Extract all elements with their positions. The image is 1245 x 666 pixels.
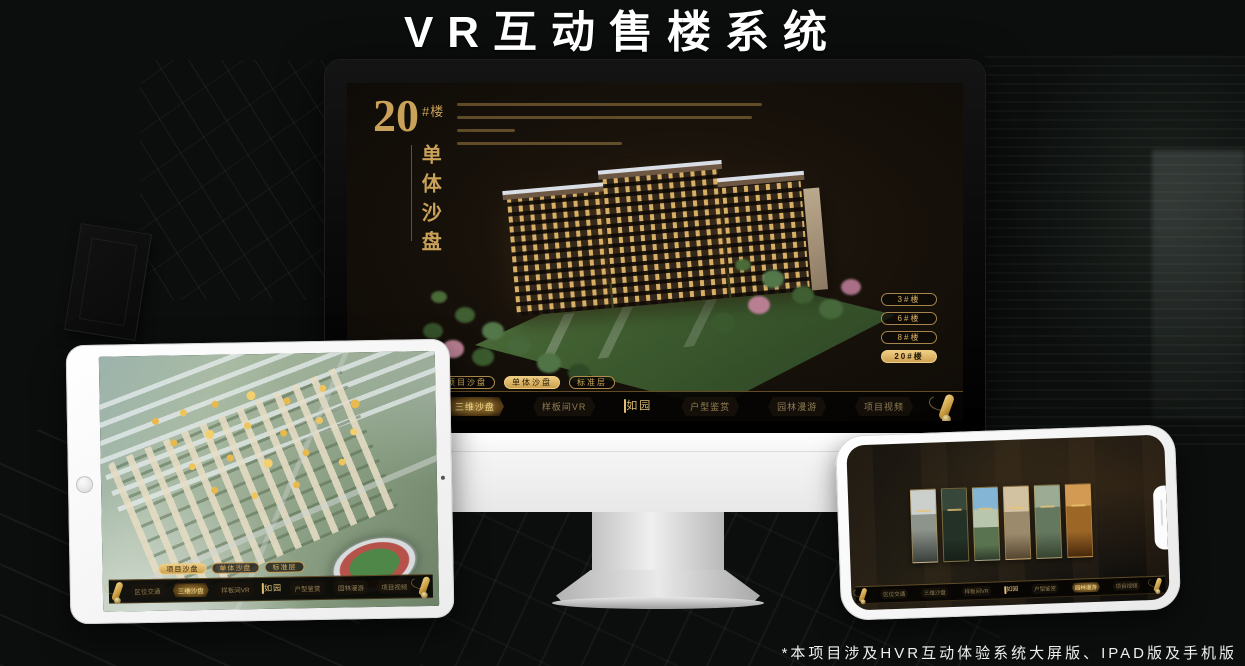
- poster-canvas: 20 #楼 单体沙盘 3#楼 6#楼 8#楼: [0, 0, 1245, 666]
- brand-logo-text: 如园: [264, 583, 282, 592]
- nav-item-showroom-vr[interactable]: 样板间VR: [533, 397, 596, 416]
- floor-button-8[interactable]: 8#楼: [881, 331, 937, 344]
- foliage-left: [431, 291, 447, 303]
- scene-panel[interactable]: [910, 489, 939, 564]
- background-bridge-glow: [1152, 150, 1245, 420]
- nav-item-garden-roam[interactable]: 园林漫游: [333, 580, 369, 595]
- nav-item-project-video[interactable]: 项目视频: [1112, 580, 1140, 591]
- page-title: VR互动售楼系统: [0, 0, 1245, 56]
- tablet-home-button[interactable]: [76, 476, 93, 493]
- brand-logo: 如园: [624, 400, 652, 412]
- scene-panel[interactable]: [1003, 485, 1032, 560]
- nav-item-project-video[interactable]: 项目视频: [855, 397, 913, 416]
- nav-item-floorplan[interactable]: 户型鉴赏: [681, 397, 739, 416]
- unit-number: 20: [373, 95, 419, 136]
- nav-item-location[interactable]: 区位交通: [880, 589, 908, 600]
- scroll-handle-icon[interactable]: [111, 581, 124, 602]
- nav-item-garden-roam[interactable]: 园林漫游: [768, 397, 826, 416]
- nav-item-project-video[interactable]: 项目视频: [376, 579, 412, 594]
- nav-item-floorplan[interactable]: 户型鉴赏: [289, 581, 325, 596]
- description-line: [457, 129, 515, 132]
- brand-logo-text: 如园: [626, 400, 652, 412]
- tablet-device: 项目沙盘 单体沙盘 标准层 区位交通 三维沙盘 样板间VR 如园 户型鉴赏 园林…: [66, 339, 455, 625]
- background-plaque: [64, 223, 152, 341]
- unit-number-suffix: #楼: [422, 101, 444, 120]
- floor-button-3[interactable]: 3#楼: [881, 293, 937, 306]
- phone-screen: 区位交通 三维沙盘 样板间VR 如园 户型鉴赏 园林漫游 项目视频: [846, 435, 1170, 611]
- building-number-markers[interactable]: [152, 418, 159, 425]
- building-wing: [602, 168, 729, 308]
- scroll-handle-icon[interactable]: [1153, 577, 1162, 592]
- tab-project-sandtable[interactable]: 项目沙盘: [158, 563, 206, 575]
- brand-logo-text: 如园: [1006, 586, 1018, 592]
- brand-emblem-icon: [624, 399, 626, 413]
- scene-panel[interactable]: [1065, 483, 1094, 558]
- nav-item-location[interactable]: 区位交通: [129, 584, 165, 599]
- floor-button-20[interactable]: 20#楼: [881, 350, 937, 363]
- description-line: [457, 103, 762, 106]
- scene-panel-gallery: [910, 483, 1093, 563]
- floor-button-group: 3#楼 6#楼 8#楼 20#楼: [881, 293, 937, 363]
- nav-item-garden-roam[interactable]: 园林漫游: [1072, 582, 1100, 593]
- tablet-camera-icon: [441, 476, 445, 480]
- footnote: *本项目涉及HVR互动体验系统大屏版、IPAD版及手机版: [782, 642, 1237, 663]
- tab-single-sandtable[interactable]: 单体沙盘: [504, 376, 560, 389]
- building-wing: [507, 190, 612, 316]
- description-line: [457, 116, 752, 119]
- brand-logo: 如园: [262, 584, 282, 593]
- nav-item-3d-sandtable[interactable]: 三维沙盘: [446, 397, 504, 416]
- floor-button-6[interactable]: 6#楼: [881, 312, 937, 325]
- nav-item-3d-sandtable[interactable]: 三维沙盘: [921, 587, 949, 598]
- building-model: [504, 138, 828, 317]
- brand-logo: 如园: [1004, 586, 1018, 593]
- scene-panel[interactable]: [941, 487, 970, 562]
- scroll-handle-icon[interactable]: [938, 393, 955, 421]
- foliage-right: [735, 259, 751, 271]
- scene-panel[interactable]: [972, 486, 1001, 561]
- monitor-stand-base: [552, 597, 764, 609]
- brand-emblem-icon: [1004, 586, 1006, 594]
- tablet-screen: 项目沙盘 单体沙盘 标准层 区位交通 三维沙盘 样板间VR 如园 户型鉴赏 园林…: [99, 351, 439, 612]
- nav-item-showroom-vr[interactable]: 样板间VR: [216, 582, 255, 597]
- building-wing: [722, 179, 810, 297]
- tab-standard-floor[interactable]: 标准层: [569, 376, 615, 389]
- phone-device: 区位交通 三维沙盘 样板间VR 如园 户型鉴赏 园林漫游 项目视频: [835, 424, 1181, 621]
- nav-item-floorplan[interactable]: 户型鉴赏: [1031, 583, 1059, 594]
- tab-single-sandtable[interactable]: 单体沙盘: [211, 562, 259, 574]
- scene-panel[interactable]: [1034, 484, 1063, 559]
- scroll-handle-icon[interactable]: [858, 588, 867, 603]
- scroll-handle-icon[interactable]: [418, 576, 431, 597]
- nav-item-3d-sandtable[interactable]: 三维沙盘: [173, 583, 209, 598]
- phone-navbar: 区位交通 三维沙盘 样板间VR 如园 户型鉴赏 园林漫游 项目视频: [855, 576, 1165, 605]
- tab-standard-floor[interactable]: 标准层: [264, 561, 304, 573]
- phone-notch: [1153, 485, 1168, 549]
- nav-item-showroom-vr[interactable]: 样板间VR: [961, 586, 991, 597]
- building-3d-scene[interactable]: [405, 143, 905, 393]
- view-tab-group: 项目沙盘 单体沙盘 标准层: [439, 376, 615, 389]
